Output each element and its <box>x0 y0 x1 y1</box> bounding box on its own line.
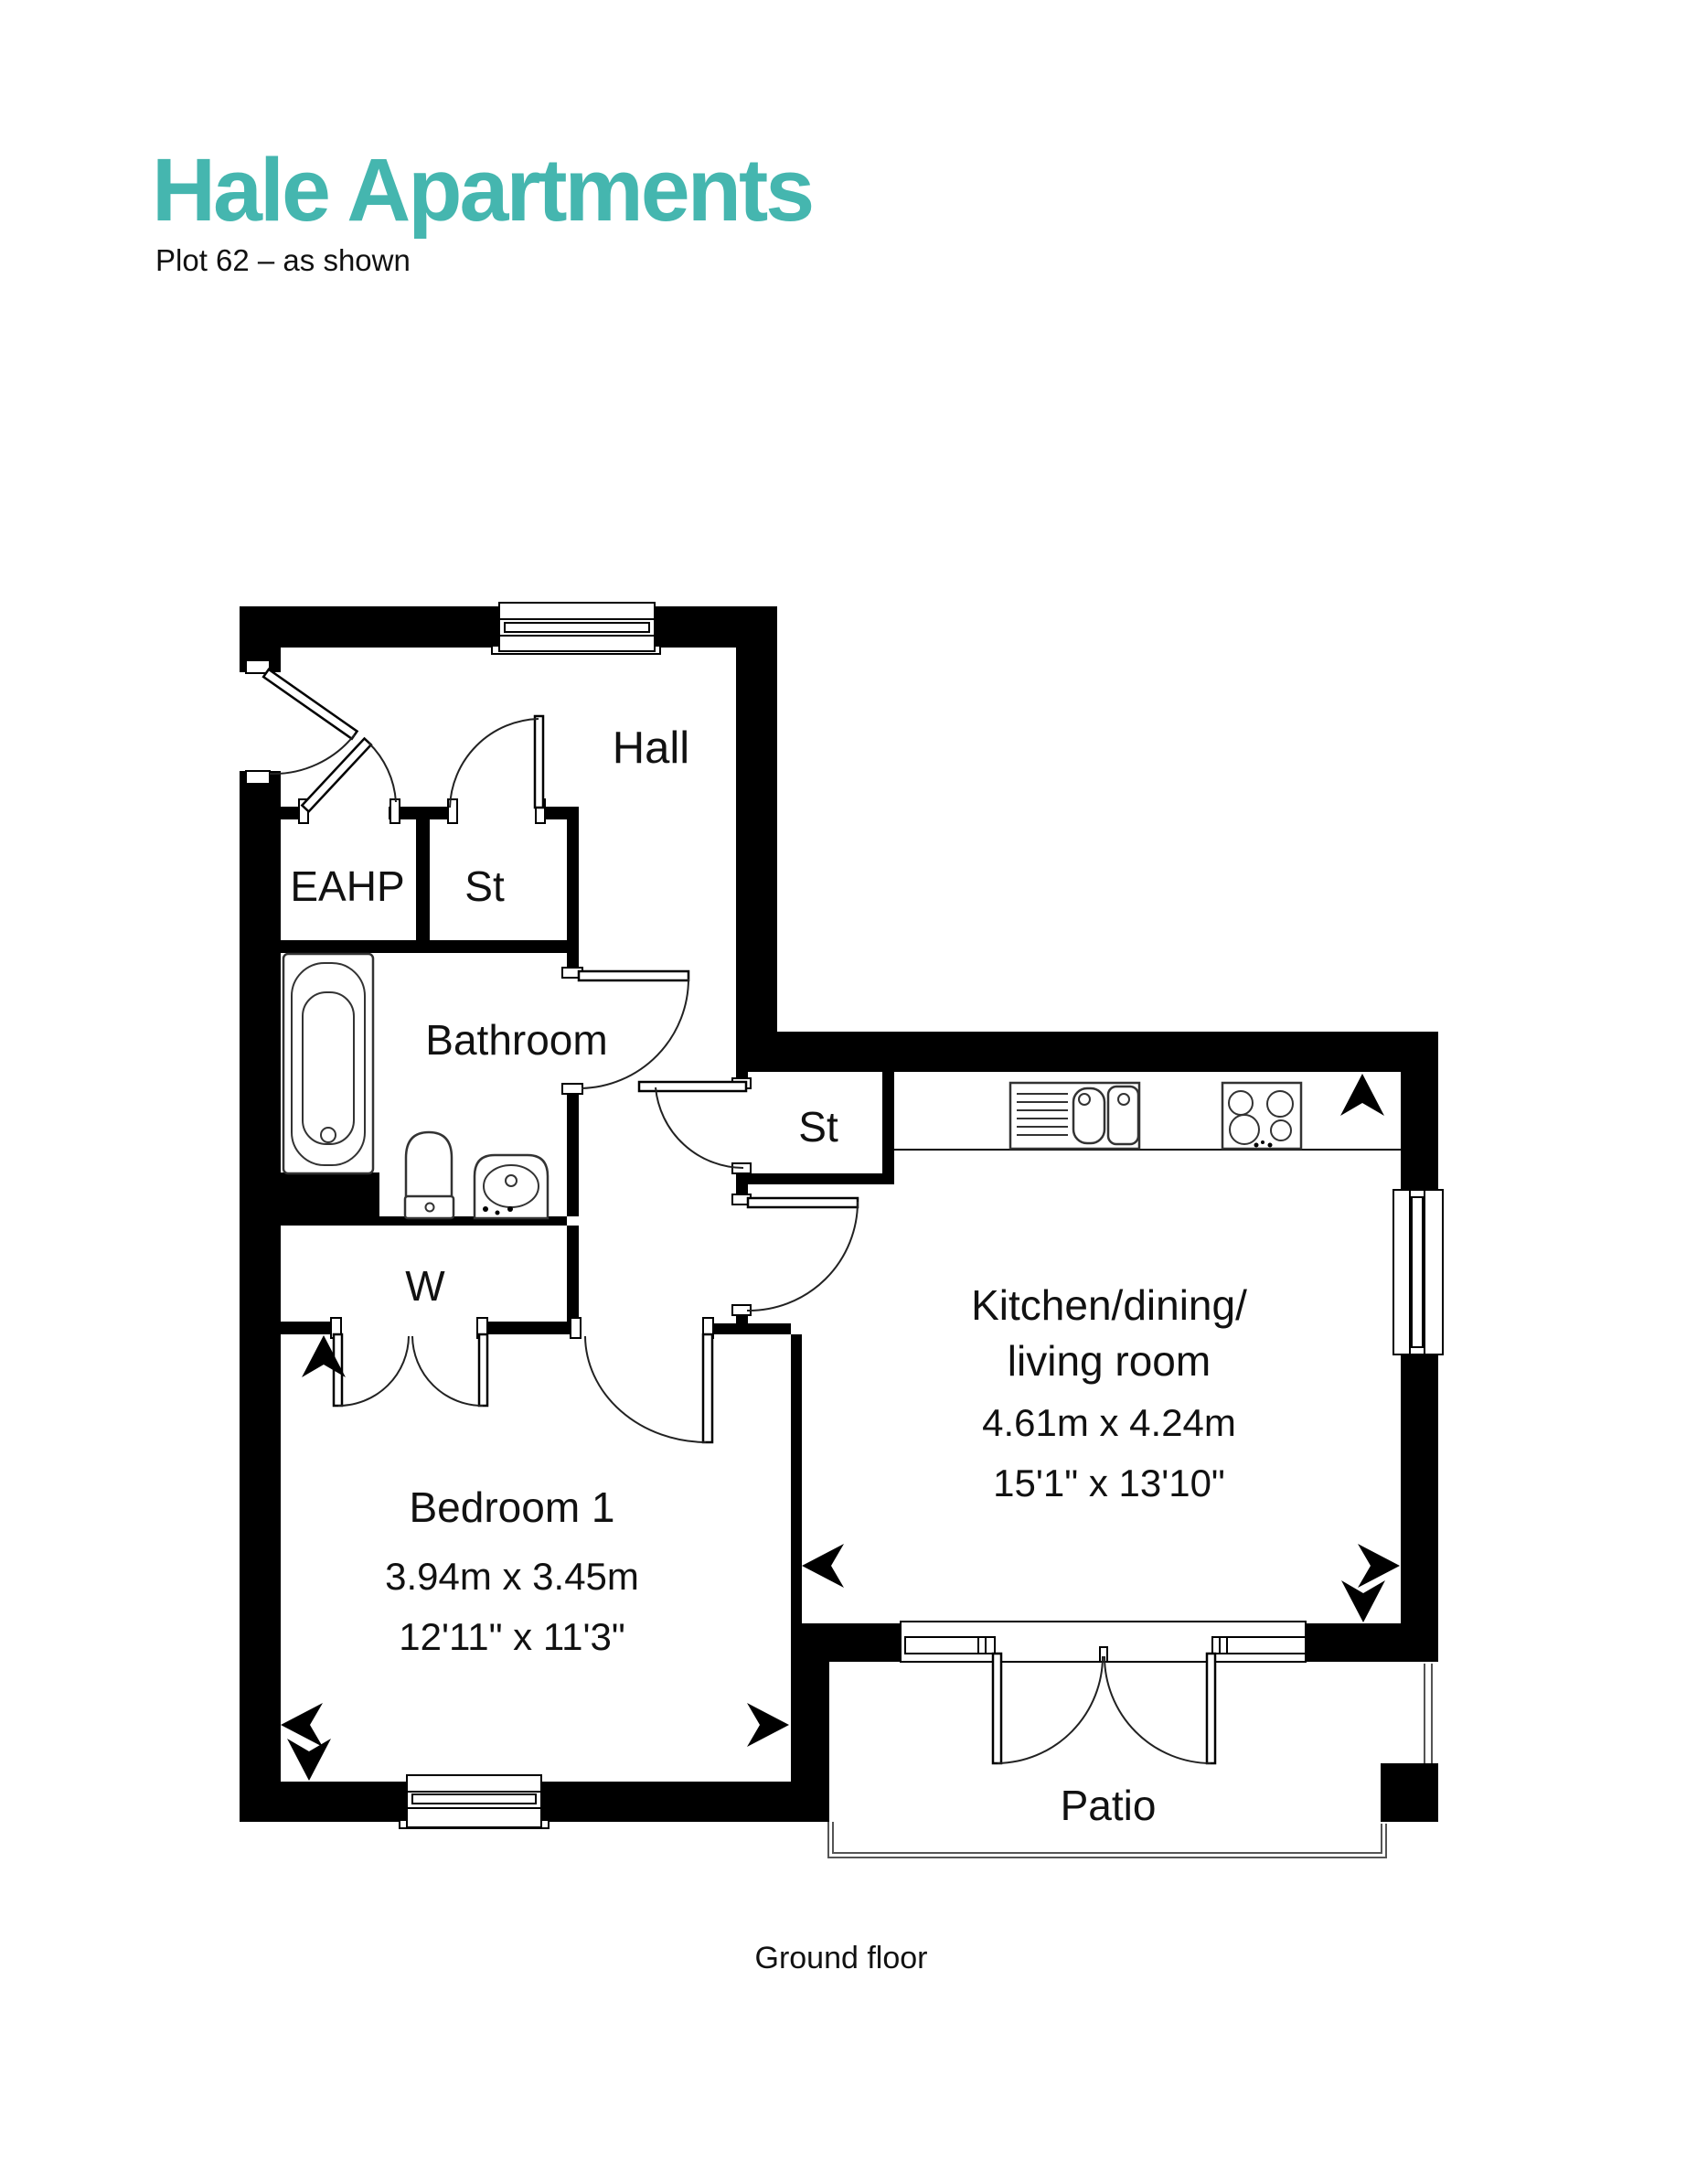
eahp-label: EAHP <box>290 862 404 910</box>
kitchen-dim-metric: 4.61m x 4.24m <box>982 1401 1236 1444</box>
wall-segment <box>281 1322 334 1334</box>
wall-segment <box>712 1323 791 1334</box>
kitchen-arrow-up-icon <box>1340 1074 1384 1116</box>
kitchen-door-icon <box>747 1198 858 1311</box>
bedroom1-dim-imperial: 12'11" x 11'3" <box>399 1615 624 1658</box>
wall-segment <box>736 648 777 1072</box>
hall-window-icon <box>492 603 660 654</box>
bedroom-arrow-right-icon <box>747 1703 789 1747</box>
patio-label: Patio <box>1061 1782 1157 1829</box>
wall-segment <box>1401 1354 1438 1623</box>
floor-label: Ground floor <box>755 1941 928 1975</box>
wall-segment <box>281 1172 379 1216</box>
bedroom-arrow-left-icon <box>281 1703 323 1747</box>
bedroom-arrow-down-icon <box>287 1739 331 1781</box>
wall-segment <box>655 606 777 648</box>
wall-segment <box>240 771 281 1822</box>
store2-label: St <box>798 1103 838 1151</box>
bathroom-label: Bathroom <box>425 1016 607 1064</box>
wall-segment <box>486 1322 571 1334</box>
basin-icon <box>475 1155 548 1218</box>
wall-segment <box>281 940 579 953</box>
wall-segment <box>748 1173 882 1184</box>
patio-doors-icon <box>901 1622 1306 1763</box>
eahp-door-icon <box>302 738 396 811</box>
bathtub-icon <box>283 954 373 1173</box>
wall-segment <box>544 807 579 819</box>
kitchen-hob-icon <box>1222 1083 1301 1149</box>
wall-segment <box>1306 1623 1438 1662</box>
wall-segment <box>882 1072 894 1184</box>
wardrobe-doors-icon <box>334 1334 487 1406</box>
floorplan-drawing: Hall EAHP St Bathroom St W Kitchen/dinin… <box>0 0 1686 2184</box>
wall-segment <box>791 1623 901 1662</box>
kitchen-dim-imperial: 15'1" x 13'10" <box>993 1461 1225 1504</box>
wall-segment <box>777 1032 1438 1072</box>
bedroom1-label: Bedroom 1 <box>409 1483 614 1531</box>
floorplan-page: Hale Apartments Plot 62 – as shown <box>0 0 1686 2184</box>
wall-segment <box>791 1662 829 1782</box>
wall-segment <box>567 819 579 969</box>
wall-segment <box>416 819 430 940</box>
wall-segment <box>541 1782 829 1822</box>
kitchen-arrow-down-icon <box>1341 1580 1385 1622</box>
kitchen-arrow-right-icon <box>1358 1544 1400 1588</box>
kitchen-sink-icon <box>1010 1083 1139 1149</box>
bedroom1-dim-metric: 3.94m x 3.45m <box>385 1555 639 1598</box>
toilet-icon <box>405 1132 454 1218</box>
bedroom-window-icon <box>400 1775 549 1828</box>
wall-segment <box>567 1093 579 1216</box>
entrance-door-icon <box>263 669 357 774</box>
kitchen-arrow-left-icon <box>802 1544 844 1588</box>
store1-door-icon <box>450 716 543 808</box>
kitchen-label-line2: living room <box>1008 1337 1211 1385</box>
wall-segment <box>791 1334 802 1623</box>
store2-door-icon <box>639 1082 746 1168</box>
hall-label: Hall <box>613 723 689 773</box>
wardrobe-label: W <box>405 1262 445 1310</box>
wall-segment <box>240 1782 407 1822</box>
bedroom-door-icon <box>585 1334 712 1442</box>
kitchen-window-icon <box>1393 1190 1443 1354</box>
store1-label: St <box>464 862 505 910</box>
kitchen-label-line1: Kitchen/dining/ <box>971 1281 1247 1329</box>
wall-segment <box>1401 1072 1438 1192</box>
patio-pillar <box>1381 1763 1438 1822</box>
